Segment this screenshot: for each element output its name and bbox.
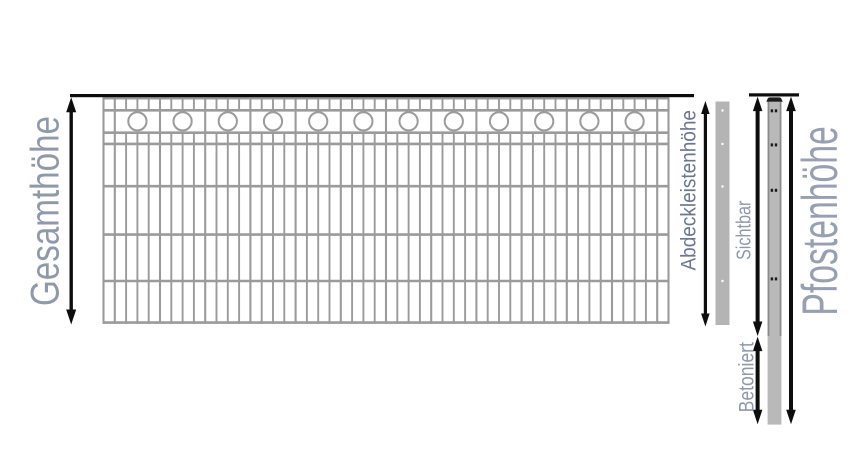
svg-text:Sichtbar: Sichtbar [733, 200, 755, 260]
svg-text:Pfostenhöhe: Pfostenhöhe [792, 126, 848, 315]
svg-text:Betoniert: Betoniert [734, 342, 758, 412]
svg-text:Abdeckleistenhöhe: Abdeckleistenhöhe [677, 110, 701, 271]
svg-text:Gesamthöhe: Gesamthöhe [24, 116, 68, 306]
